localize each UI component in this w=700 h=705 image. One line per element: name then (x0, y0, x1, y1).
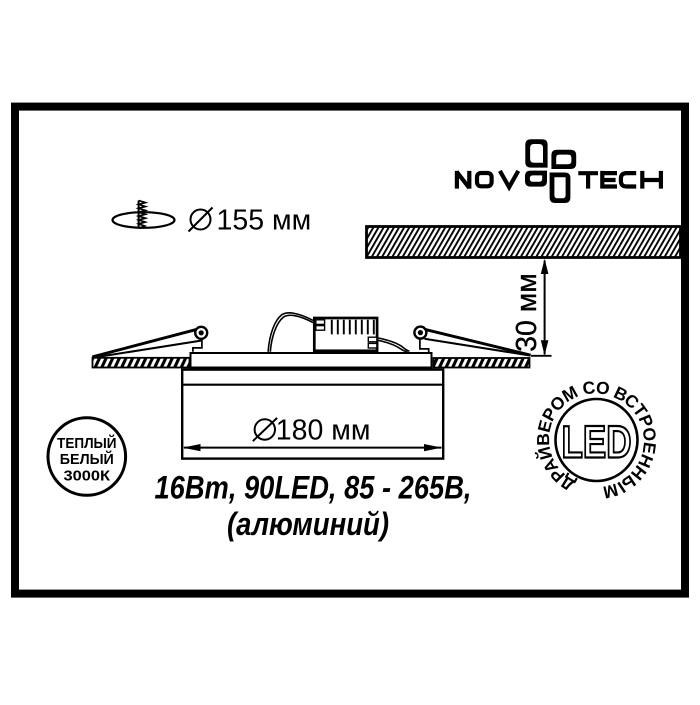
svg-text:30 мм: 30 мм (511, 273, 543, 352)
svg-text:LED: LED (562, 416, 632, 467)
svg-text:ТЕПЛЫЙ: ТЕПЛЫЙ (57, 434, 117, 452)
svg-text:БЕЛЫЙ: БЕЛЫЙ (60, 450, 114, 468)
svg-text:155 мм: 155 мм (217, 204, 312, 236)
svg-text:3000К: 3000К (64, 468, 111, 485)
svg-text:16Вm, 90LED, 85 - 265В,: 16Вm, 90LED, 85 - 265В, (155, 469, 472, 505)
svg-text:(алюминий): (алюминий) (227, 506, 389, 542)
svg-text:180 мм: 180 мм (276, 415, 371, 447)
